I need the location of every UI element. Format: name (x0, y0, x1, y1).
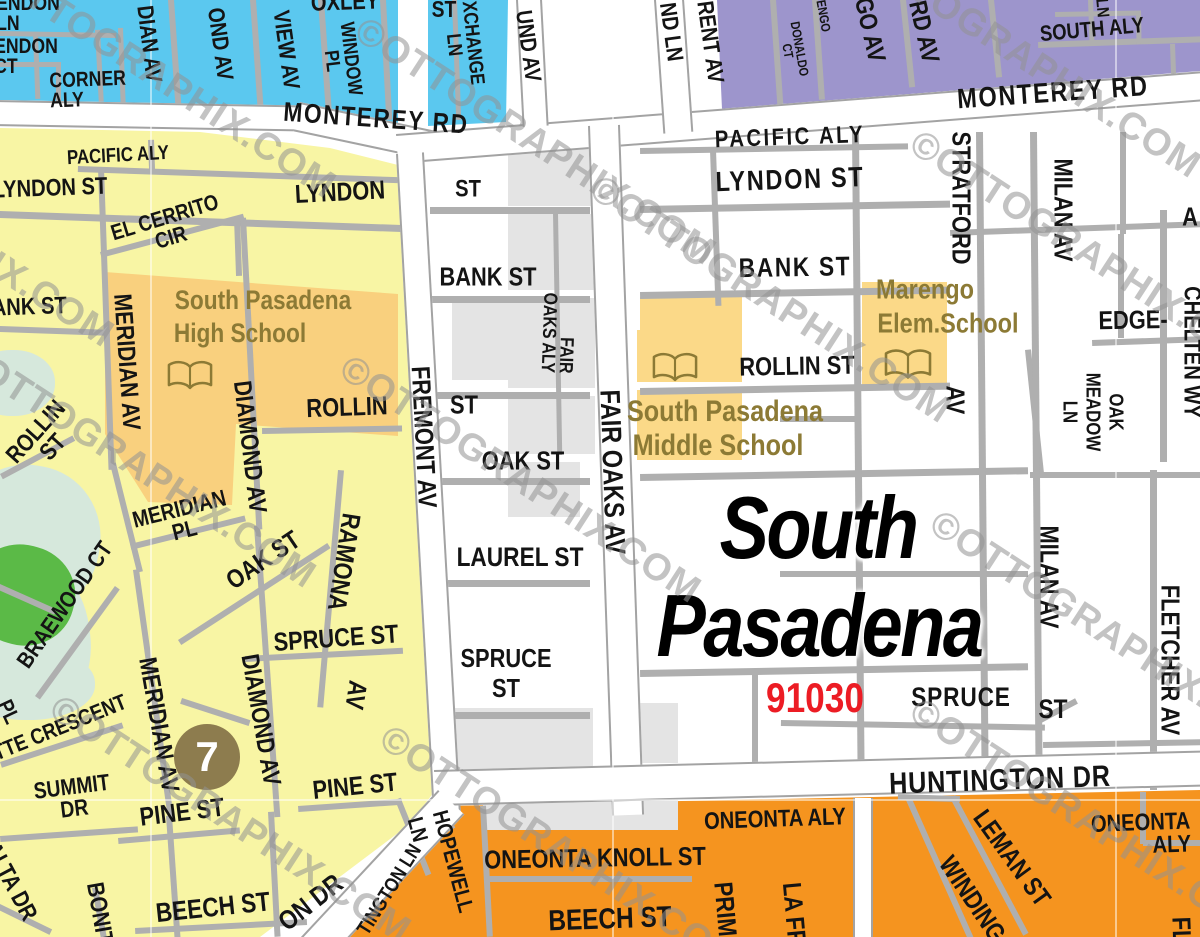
minor-road (1170, 44, 1176, 74)
minor-road (446, 712, 590, 719)
minor-road (640, 383, 950, 395)
label-street-oxley: OXLEY (310, 0, 379, 16)
label-street-laurel-st: LAUREL ST (457, 545, 584, 571)
label-street-milan-av-upper: MILAN AV (1051, 158, 1076, 261)
minor-road (430, 207, 590, 214)
label-street-fair-oaks-av: FAIR OAKS AV (596, 389, 628, 554)
map-canvas: ENDON LNENDON CTCORNER ALYDIAN AVOND AVV… (0, 0, 1200, 937)
label-street-oneonta-knoll-st: ONEONTA KNOLL ST (484, 844, 706, 873)
label-street-milan-av-lower: MILAN AV (1037, 525, 1062, 628)
label-school-hs-line2: High School (174, 321, 306, 347)
label-street-fair-oaks-aly: FAIR OAKS ALY (538, 292, 577, 374)
label-street-oak-meadow-ln: OAK MEADOW LN (1058, 373, 1127, 451)
label-street-lyndon-st-west: LYNDON ST (0, 176, 108, 203)
label-school-hs-line1: South Pasadena (175, 288, 351, 314)
road-monterey-rd-west-a (0, 100, 320, 132)
label-school-ms-line1: South Pasadena (627, 398, 823, 427)
label-street-fletcher-av: FLETCHER AV (1158, 585, 1183, 735)
label-zip-code-label: 91030 (766, 678, 864, 718)
label-street-oneonta-aly-east: ONEONTA ALY (1091, 810, 1192, 859)
road-oneonta-road (853, 798, 873, 937)
label-street-ln-purple: LN (1093, 0, 1111, 18)
highway-7-badge: 7 (174, 724, 240, 790)
book-icon-middle-school (652, 351, 698, 384)
label-street-spruce-east: SPRUCE (911, 685, 1011, 711)
label-street-spruce-east-st: ST (1039, 697, 1068, 723)
label-street-lyndon: LYNDON (294, 177, 385, 206)
label-street-bank-st-mid: BANK ST (439, 265, 536, 290)
minor-road (1120, 132, 1126, 234)
minor-road (438, 478, 590, 485)
book-icon-marengo (884, 347, 932, 382)
label-street-exchange-ln: XCHANGE LN (440, 0, 487, 88)
label-street-chelten-wy: CHELTEN WY (1180, 286, 1200, 418)
label-city-label-pasadena: Pasadena (656, 584, 981, 668)
minor-road (486, 876, 692, 882)
label-street-st-lyndon-mid: ST (455, 179, 481, 202)
label-street-edge: EDGE- (1098, 307, 1168, 333)
label-school-marengo-line1: Marengo (876, 277, 974, 304)
fold-line (1115, 0, 1117, 937)
label-street-ramona-av: AV (342, 679, 371, 711)
label-street-oneonta-aly-west: ONEONTA ALY (704, 806, 847, 834)
label-street-rollin-st-east: ROLLIN ST (739, 353, 855, 380)
minor-road (1043, 739, 1200, 748)
label-street-huntington-dr: HUNTINGTON DR (889, 763, 1112, 799)
minor-road (1160, 210, 1167, 462)
label-street-stratford: STRATFORD (949, 131, 974, 264)
book-icon-high-school (167, 359, 213, 392)
label-street-pacific-aly-east: PACIFIC ALY (715, 124, 866, 152)
label-street-endon-ln: ENDON LN (0, 0, 60, 34)
label-street-stratford-av: AV (943, 386, 968, 415)
label-street-bank-st-east: BANK ST (739, 254, 852, 282)
label-city-label-south: South (720, 486, 917, 570)
label-street-fletcher-frag: FLETCHER (1169, 916, 1198, 937)
label-street-rollin: ROLLIN (306, 393, 388, 421)
label-street-lyndon-st-east: LYNDON ST (715, 164, 865, 196)
minor-road (640, 201, 950, 213)
label-school-marengo-line2: Elem.School (877, 311, 1018, 338)
label-street-oak-st-mid: OAK ST (482, 449, 565, 474)
minor-road (781, 720, 1045, 731)
minor-road (442, 580, 590, 587)
label-street-corner-aly: CORNER ALY (49, 69, 127, 112)
label-street-a-frag: A (1182, 205, 1198, 230)
label-street-beech-st-east: BEECH ST (548, 904, 672, 936)
label-street-bank-st-left: BANK ST (0, 295, 67, 321)
label-street-spruce-st-mid: SPRUCE ST (460, 644, 551, 704)
label-street-fremont-av: FREMONT AV (408, 365, 440, 508)
label-school-ms-line2: Middle School (633, 432, 804, 461)
map-parcel (452, 298, 508, 380)
fold-line (150, 0, 152, 937)
label-street-st-rollin-mid: ST (450, 393, 478, 418)
label-street-pacific-aly-west: PACIFIC ALY (67, 144, 170, 168)
label-street-summit-dr: SUMMIT DR (33, 772, 114, 825)
label-street-window-pl: WINDOW PL (318, 21, 365, 99)
